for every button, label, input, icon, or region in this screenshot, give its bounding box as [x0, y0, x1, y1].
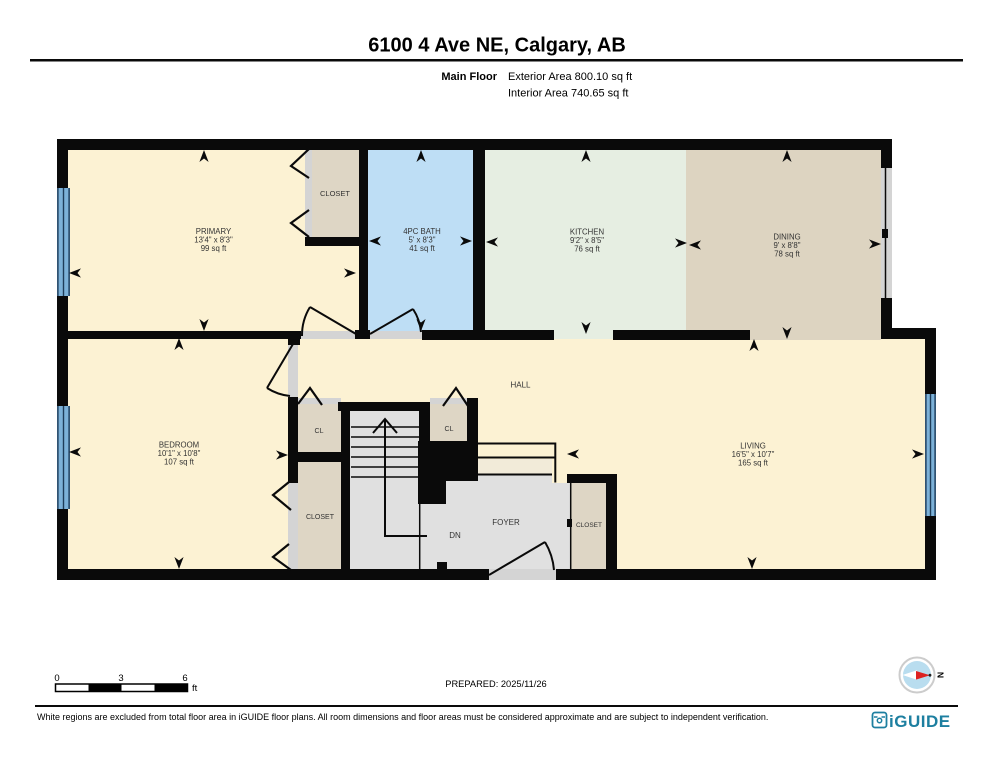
svg-text:CLOSET: CLOSET — [306, 514, 335, 521]
svg-text:HALL: HALL — [510, 381, 531, 390]
svg-text:6: 6 — [182, 673, 187, 684]
svg-text:DN: DN — [449, 531, 461, 540]
svg-text:CLOSET: CLOSET — [320, 189, 350, 198]
svg-text:76 sq ft: 76 sq ft — [574, 245, 600, 254]
svg-text:99 sq ft: 99 sq ft — [201, 244, 227, 253]
svg-text:FOYER: FOYER — [492, 518, 520, 527]
svg-text:165 sq ft: 165 sq ft — [738, 459, 769, 468]
svg-text:N: N — [936, 672, 946, 678]
svg-text:CL: CL — [445, 426, 454, 433]
svg-text:Exterior Area 800.10 sq ft: Exterior Area 800.10 sq ft — [508, 71, 632, 83]
svg-text:iGUIDE: iGUIDE — [889, 712, 951, 731]
svg-text:CL: CL — [315, 428, 324, 435]
svg-text:Main Floor: Main Floor — [441, 71, 497, 83]
svg-text:3: 3 — [118, 673, 123, 684]
svg-text:6100 4 Ave NE, Calgary, AB: 6100 4 Ave NE, Calgary, AB — [368, 35, 626, 57]
svg-text:PREPARED: 2025/11/26: PREPARED: 2025/11/26 — [445, 679, 546, 689]
svg-text:107 sq ft: 107 sq ft — [164, 458, 195, 467]
svg-text:Interior Area 740.65 sq ft: Interior Area 740.65 sq ft — [508, 88, 628, 100]
svg-text:White regions are excluded fro: White regions are excluded from total fl… — [37, 712, 768, 722]
svg-text:41 sq ft: 41 sq ft — [409, 244, 435, 253]
svg-text:78 sq ft: 78 sq ft — [774, 250, 800, 259]
svg-text:CLOSET: CLOSET — [576, 522, 602, 529]
svg-text:0: 0 — [54, 673, 59, 684]
svg-text:ft: ft — [192, 683, 198, 694]
